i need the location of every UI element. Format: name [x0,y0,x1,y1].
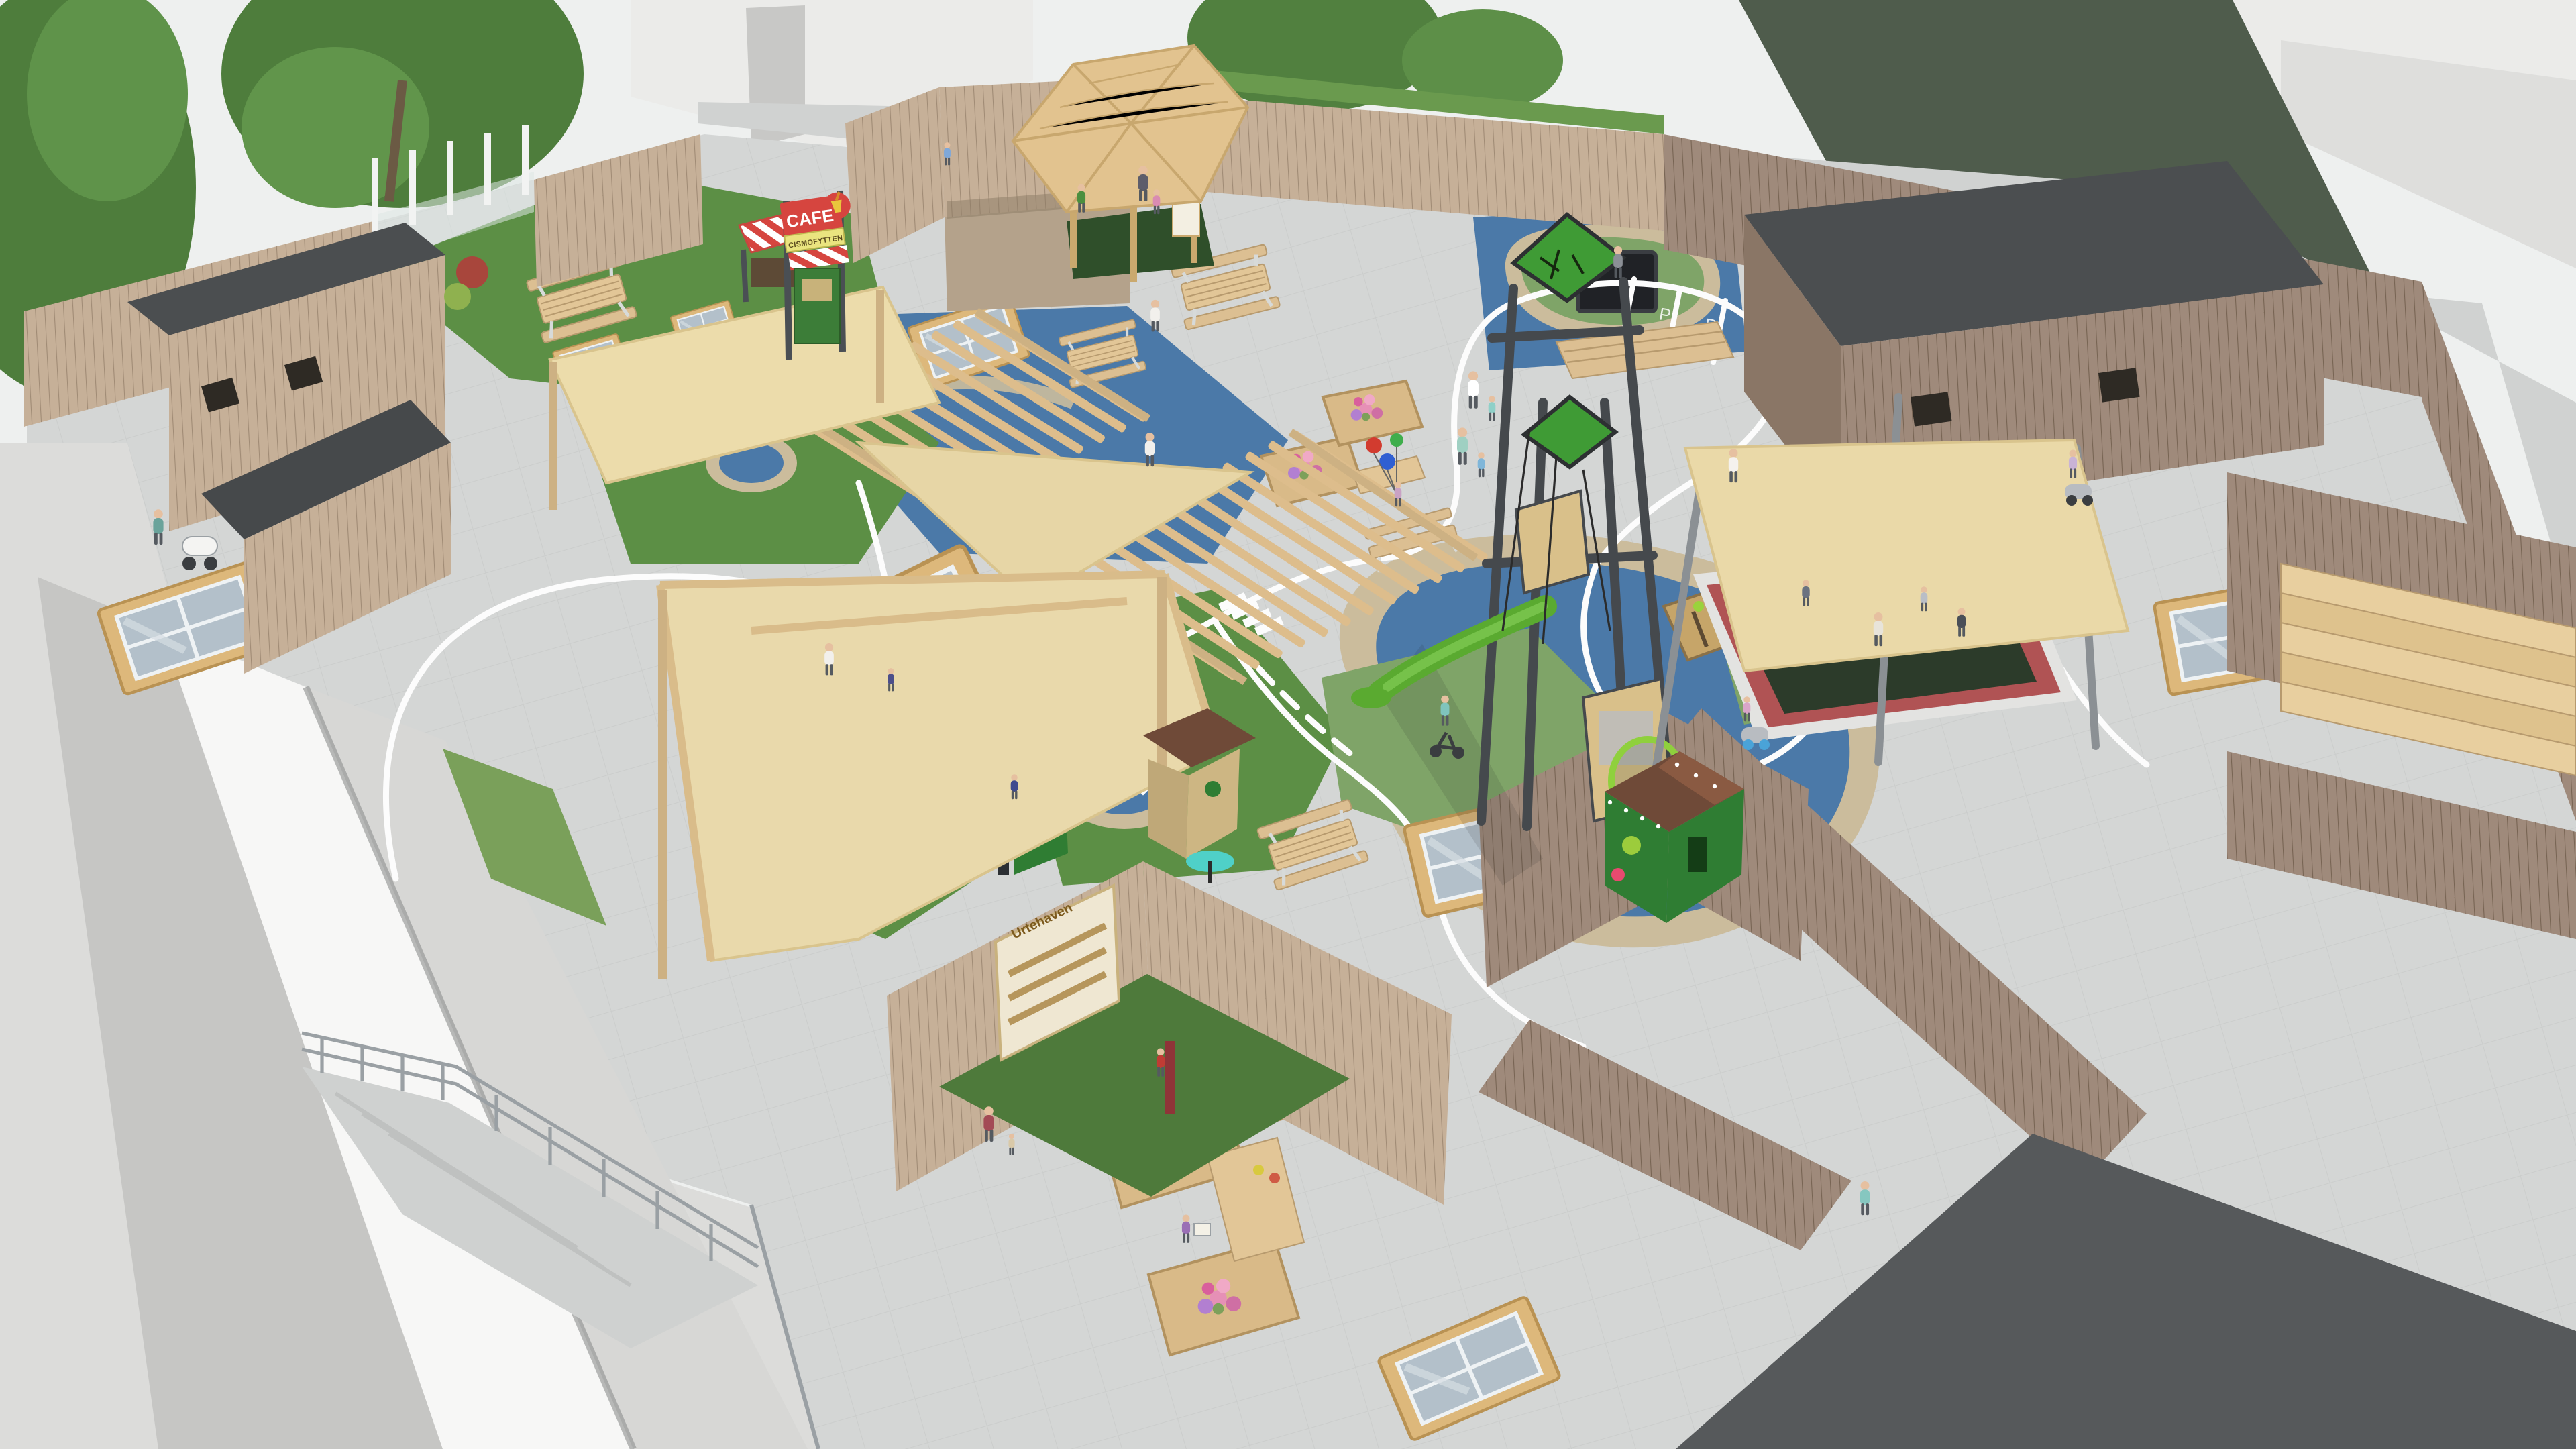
cabin-window [1911,392,1952,426]
shade-sail-sandpit [1685,440,2128,671]
gazebo-activity-panel [1173,201,1199,236]
book [1194,1224,1210,1236]
red-post [1165,1041,1175,1114]
cabin-window [2098,368,2140,402]
playground-render: P P P [0,0,2576,1449]
